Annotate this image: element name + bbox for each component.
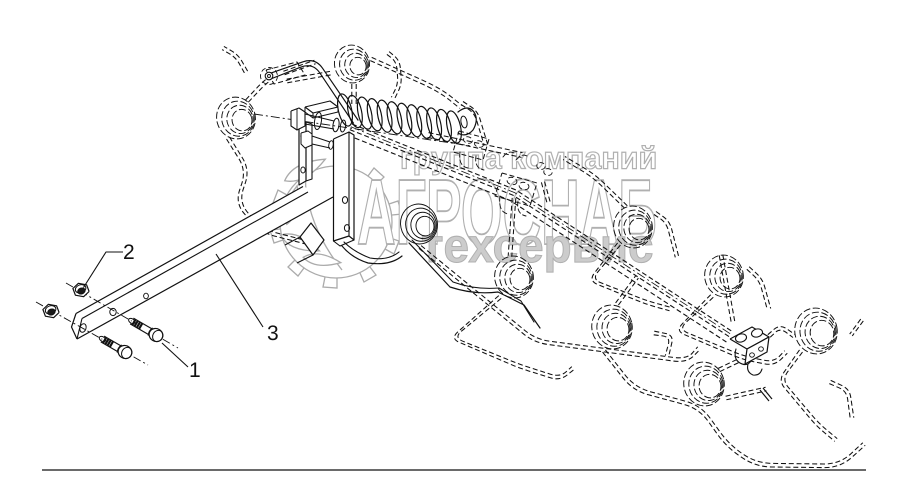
svg-text:1: 1 bbox=[189, 359, 201, 382]
svg-text:техсервис: техсервис bbox=[421, 219, 654, 272]
svg-text:3: 3 bbox=[267, 322, 279, 345]
svg-text:2: 2 bbox=[123, 241, 135, 264]
